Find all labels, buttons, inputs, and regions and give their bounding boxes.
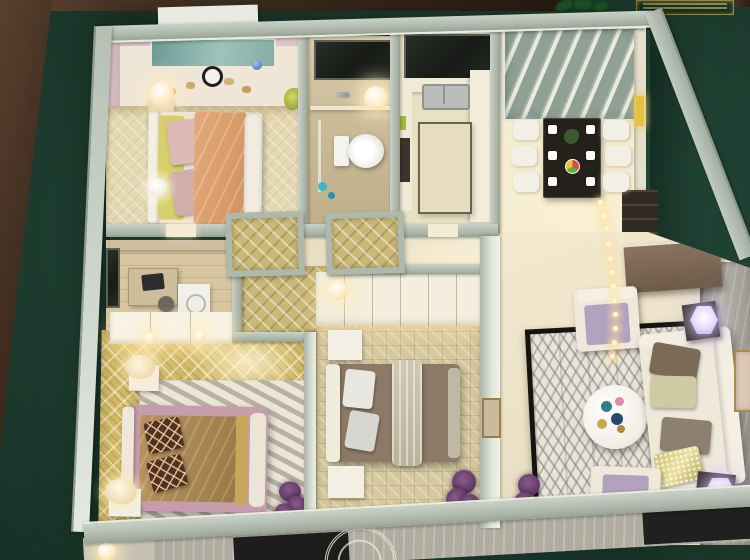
table-decor [615,397,624,406]
floor-led-dot [613,312,618,317]
ceiling-lamp-glowing [328,280,348,300]
trinket [224,78,234,85]
place-setting [548,125,557,134]
bedroom-bottom-left [98,330,313,530]
study-window [106,248,120,308]
double-sink [422,84,470,110]
bedside-lamp-glowing [150,82,174,106]
wall-bedbl-bedmid [304,332,316,528]
kitchen [398,30,498,228]
model-photo-scene [0,0,750,560]
desk-chair [158,296,174,312]
bed [125,405,269,513]
floor-led-dot [598,200,603,205]
wardrobe-downlight [194,330,206,342]
dining-chair [511,146,537,166]
centerpiece-plant [564,129,579,144]
doorway-gap [428,224,458,237]
floor-led-dot [608,256,613,261]
dining-chair [603,120,629,140]
place-setting [548,177,557,186]
dining-table [543,118,601,198]
faucet [332,92,350,98]
outer-wall-east [645,8,750,261]
duvet-peach [193,112,246,225]
nightstand [328,330,362,360]
crystal-lamp-wrap [690,306,718,334]
coffee-table-round [583,385,647,449]
bedroom-bottom-middle [316,272,482,528]
wall-bedmid-living [480,236,500,528]
mirror-lamp-glowing [364,86,388,110]
wood-table-edge-top [0,0,565,11]
floor-led-dot [604,226,609,231]
foot-blanket [249,413,267,507]
dining-chair [605,146,631,166]
foot-blanket-roll [243,112,262,224]
armchair-back [577,286,634,302]
yellow-wall-sconce [636,96,644,126]
dark-panel-wall [622,190,658,234]
place-setting [586,151,595,160]
dining-sunroom [498,22,646,234]
table-decor [617,425,625,433]
dining-chair [603,172,629,192]
pillow-silver [342,369,376,410]
floor-led-dot [610,270,615,275]
toilet-bowl [348,134,384,168]
floor-led-dot [610,354,615,359]
table-decor [597,419,607,429]
place-setting [586,177,595,186]
headboard [326,364,340,462]
bedroom-top-left [106,36,306,232]
wall-kitchen-dining [490,22,500,234]
trinket [186,82,195,89]
entry-closet [325,211,405,275]
balcony-lamp [97,542,116,560]
table-decor [601,401,612,412]
trinket [242,86,251,93]
fruit-cake-plate [565,159,580,174]
computer-monitor [141,273,165,291]
lavender-cushion [584,303,631,346]
tv-cabinet [623,239,722,294]
place-setting [586,125,595,134]
wood-table-edge-left [0,0,60,470]
champagne-runner [392,360,422,466]
floor-led-dot [612,298,617,303]
wall-bath-kitchen [390,30,400,228]
pillow-silver [344,410,380,453]
wall-bed1-bath [298,36,308,228]
blue-toiletry [318,182,327,191]
bathroom [306,36,398,228]
bed [147,111,262,224]
wardrobe-downlight [144,332,156,344]
floor-led-dot [612,340,617,345]
frame-on-wall [482,398,501,438]
floor-led-dot [606,242,611,247]
foot-edge [448,368,460,458]
crystal-hex-lamp-glowing [690,306,718,334]
floor-ball-lamp [148,178,167,197]
glass-skylight [502,26,646,122]
blue-ball-decor [252,60,262,70]
place-setting [548,151,557,160]
ring-dish [202,66,223,87]
oven-dark [400,138,410,182]
floor-led-dot [601,214,606,219]
bathroom-window [314,40,394,80]
table-decor [611,413,623,425]
shelf-band [110,240,230,250]
toilet-tank [334,136,349,166]
floor-led-dot [611,284,616,289]
kitchen-island-outline [418,122,472,214]
lit-wardrobe-band [110,312,232,344]
blue-toiletry [328,192,335,199]
dining-chair [513,120,539,140]
pillow-olive-cream [650,375,697,408]
armchair-top [573,286,641,352]
entry-closet [225,211,305,277]
picture-frame [734,350,750,412]
nightstand [328,466,364,498]
gold-runner [235,415,249,505]
bed [330,364,460,462]
wall-study-bottom [232,332,312,342]
floor-led-dot [613,326,618,331]
doorway-gap [166,224,196,237]
dining-chair [513,172,539,192]
pillow-chocolate-lattice [143,416,184,454]
